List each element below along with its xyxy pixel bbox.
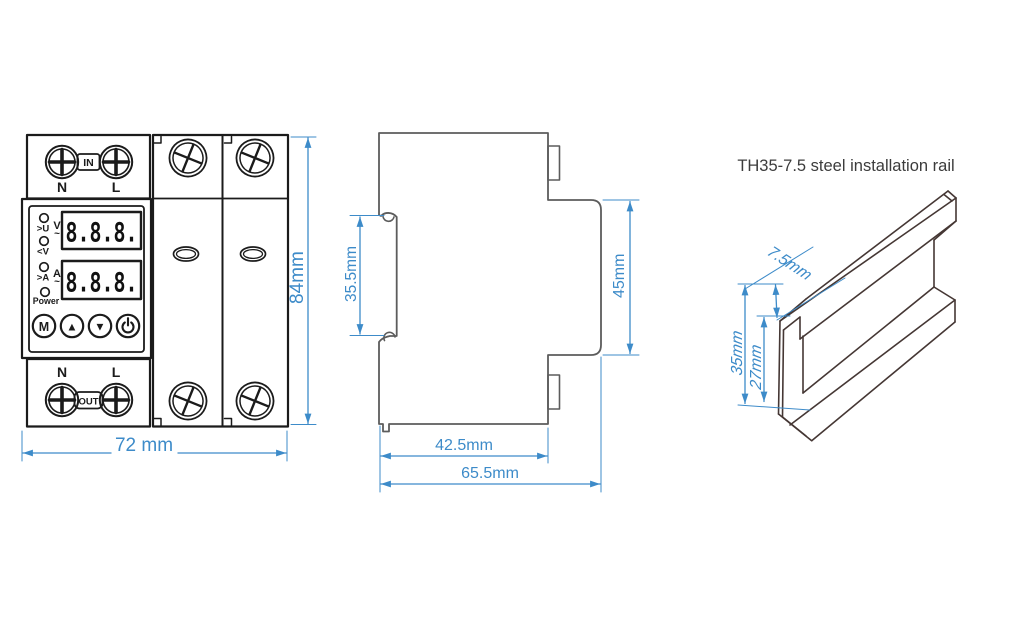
height-dimension-label: 84mm: [287, 251, 308, 304]
screw-terminal-out-l: [100, 384, 132, 416]
menu-button-label: M: [39, 320, 49, 334]
side-profile-outline: [379, 133, 601, 432]
front-view: IN N L >U <V >A Power V ~ A ~ 8.8.8.: [22, 134, 316, 461]
body-height-dimension-label: 45mm: [611, 254, 628, 298]
under-voltage-label: <V: [37, 247, 50, 258]
body-depth-dimension-label: 42.5mm: [435, 437, 493, 454]
up-arrow-icon: ▲: [66, 322, 77, 334]
width-dimension-label: 72 mm: [115, 435, 173, 456]
rail-depth-dimension-label: 7.5mm: [763, 243, 815, 284]
over-current-label: >A: [37, 273, 50, 284]
output-terminal-block: N L OUT: [27, 359, 150, 427]
rail-height-dimension-label: 35mm: [728, 329, 746, 377]
out-label: OUT: [78, 397, 98, 408]
side-view-dimensions: 35.5mm 45mm 42.5mm 65.5mm: [343, 200, 639, 492]
rail-slot-dimension-label: 35.5mm: [343, 246, 360, 302]
rail-inner-dimension-label: 27mm: [747, 343, 765, 392]
technical-drawing-page: IN N L >U <V >A Power V ~ A ~ 8.8.8.: [0, 0, 1035, 639]
rail-figure: TH35-7.5 steel installation rail: [728, 157, 956, 441]
drawing-canvas: IN N L >U <V >A Power V ~ A ~ 8.8.8.: [0, 0, 1035, 639]
power-label: Power: [33, 296, 60, 306]
voltage-display-value: 8.8.8.: [66, 218, 138, 249]
terminal-bump-bottom: [548, 375, 560, 409]
screw-terminal-in-n: [46, 146, 78, 178]
terminal-l-bottom-label: L: [112, 364, 121, 380]
down-arrow-icon: ▼: [94, 322, 105, 334]
terminal-l-top-label: L: [112, 179, 121, 195]
total-depth-dimension-label: 65.5mm: [461, 465, 519, 482]
display-module: >U <V >A Power V ~ A ~ 8.8.8. 8.8.8. M ▲: [22, 199, 151, 358]
amp-ac-wave: ~: [54, 277, 60, 288]
side-view: 35.5mm 45mm 42.5mm 65.5mm: [343, 133, 639, 492]
screw-terminal-in-l: [100, 146, 132, 178]
over-voltage-label: >U: [37, 224, 50, 235]
input-terminal-block: IN N L: [27, 135, 150, 199]
terminal-n-top-label: N: [57, 179, 67, 195]
rail-depth-dimension-line: [776, 285, 778, 318]
in-label: IN: [83, 157, 94, 169]
rail-clip-notch-top: [383, 217, 394, 222]
current-display-value: 8.8.8.: [66, 268, 138, 299]
rail-dimensions: 7.5mm 35mm 27mm: [728, 243, 845, 410]
terminal-bump-top: [548, 146, 560, 180]
volt-ac-wave: ~: [54, 229, 60, 240]
rail-title: TH35-7.5 steel installation rail: [737, 157, 954, 175]
terminal-n-bottom-label: N: [57, 364, 67, 380]
screw-terminal-out-n: [46, 384, 78, 416]
side-modules: [153, 134, 288, 427]
rail-isometric-drawing: [779, 191, 957, 441]
